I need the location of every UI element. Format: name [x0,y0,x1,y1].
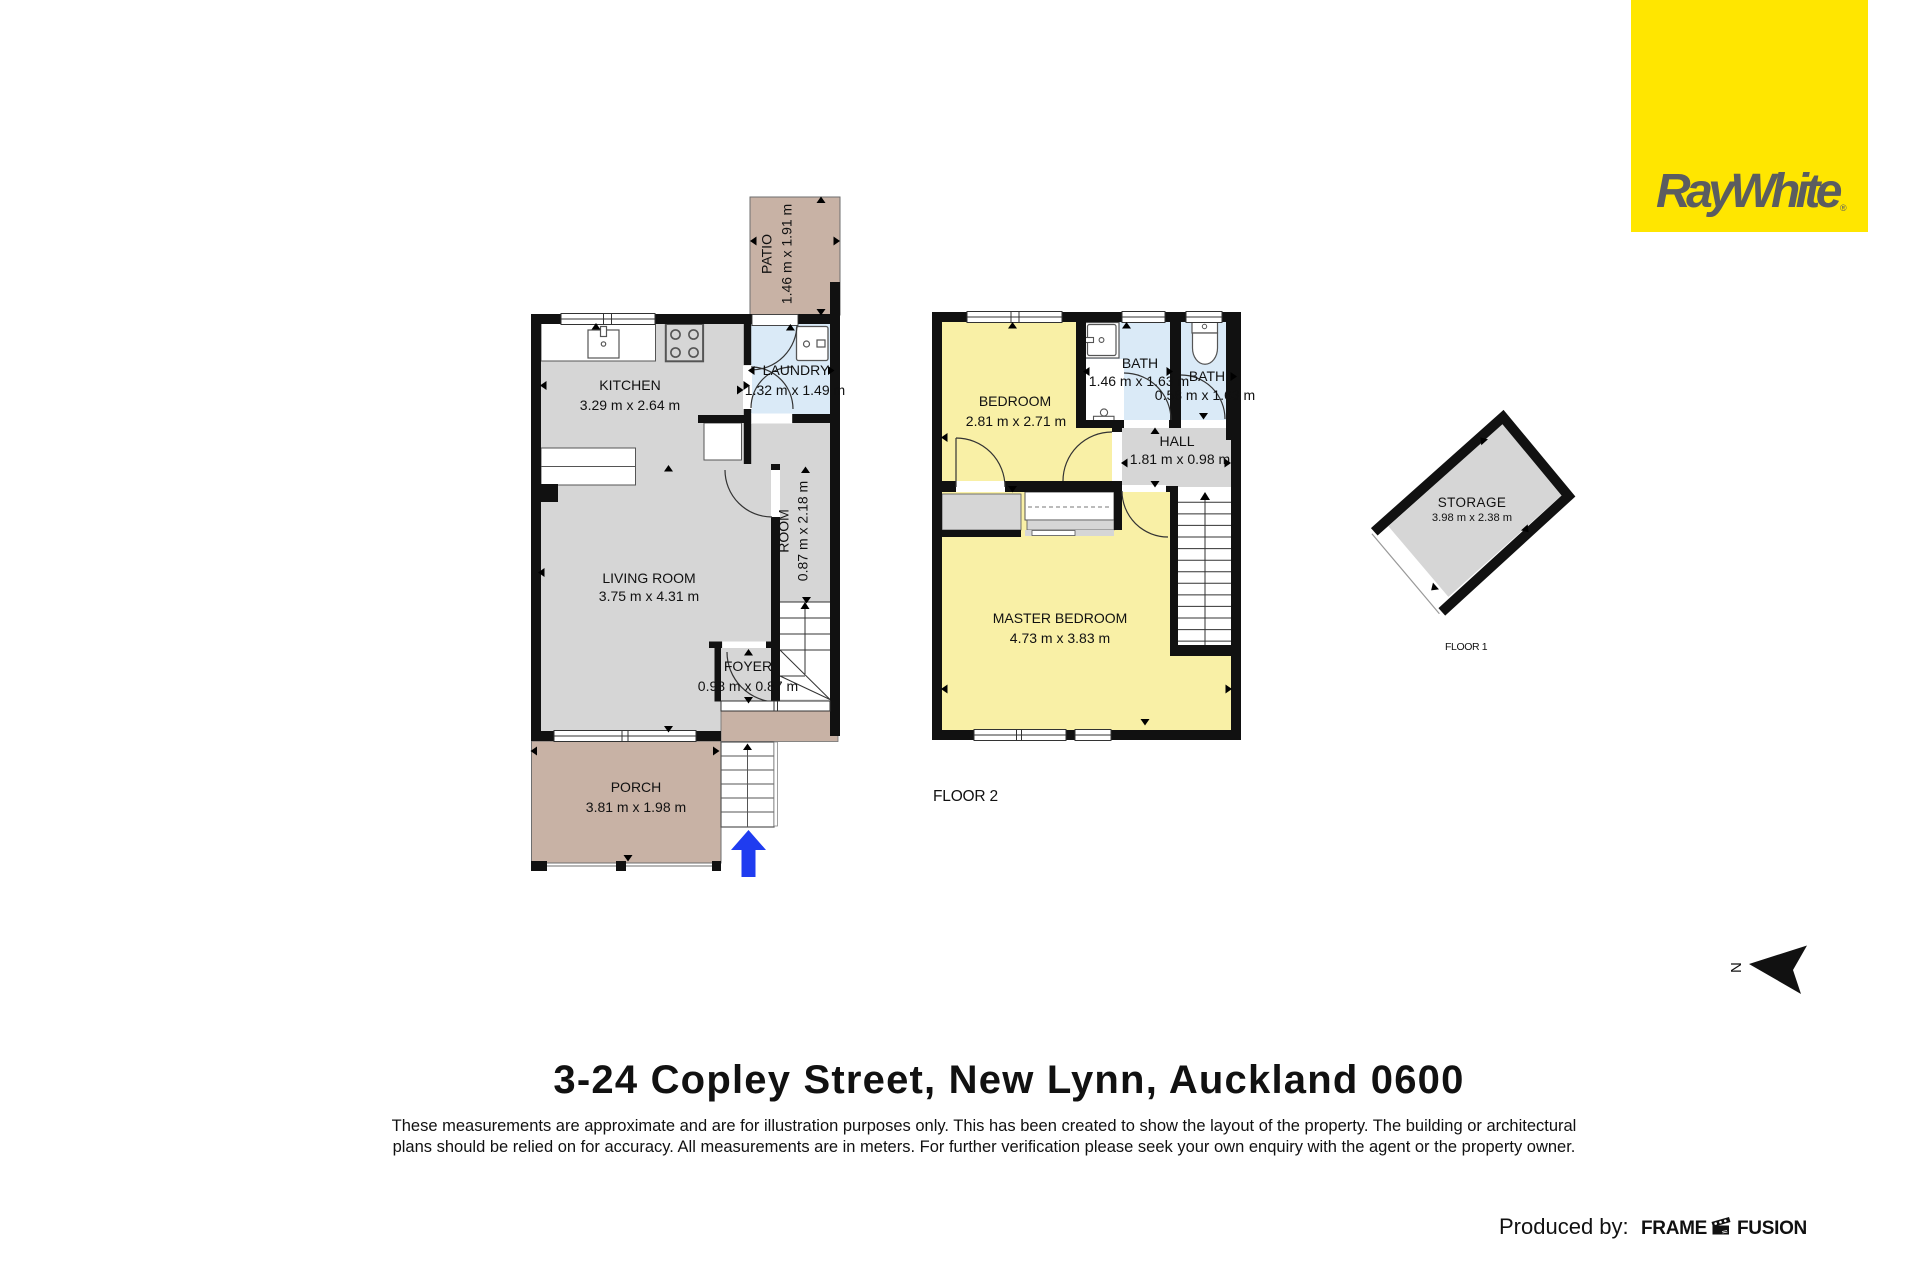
svg-text:®: ® [1840,203,1847,213]
svg-text:1.46 m x 1.91 m: 1.46 m x 1.91 m [779,204,795,304]
svg-text:HALL: HALL [1159,433,1194,449]
svg-text:3.75 m x 4.31 m: 3.75 m x 4.31 m [599,588,699,604]
svg-text:3.81 m x 1.98 m: 3.81 m x 1.98 m [586,799,686,815]
svg-text:ROOM: ROOM [776,509,792,553]
svg-text:4.73 m x 3.83 m: 4.73 m x 3.83 m [1010,630,1110,646]
svg-text:FLOOR 1: FLOOR 1 [1445,641,1488,653]
svg-text:These measurements are approxi: These measurements are approximate and a… [392,1117,1577,1135]
svg-text:RayWhite: RayWhite [1656,165,1842,218]
svg-text:FOYER: FOYER [724,658,772,674]
svg-text:FRAME: FRAME [1641,1218,1707,1239]
svg-text:3.98 m x 2.38 m: 3.98 m x 2.38 m [1432,512,1512,524]
svg-text:0.87 m x 2.18 m: 0.87 m x 2.18 m [795,481,811,581]
svg-text:Produced by:: Produced by: [1499,1214,1629,1239]
svg-text:0.98 m x 0.87 m: 0.98 m x 0.87 m [698,678,798,694]
svg-text:3.29 m x 2.64 m: 3.29 m x 2.64 m [580,397,680,413]
svg-text:KITCHEN: KITCHEN [599,377,660,393]
svg-text:FLOOR 2: FLOOR 2 [933,788,998,805]
svg-text:STORAGE: STORAGE [1438,495,1507,510]
svg-text:3-24 Copley Street, New Lynn,: 3-24 Copley Street, New Lynn, Auckland 0… [553,1058,1464,1102]
svg-text:BATH: BATH [1189,368,1225,384]
svg-text:LAUNDRY: LAUNDRY [763,362,830,378]
svg-text:1.32 m x 1.49 m: 1.32 m x 1.49 m [745,382,845,398]
svg-text:0.58 m x 1.63 m: 0.58 m x 1.63 m [1155,387,1255,403]
svg-text:PORCH: PORCH [611,779,662,795]
svg-text:BATH: BATH [1122,355,1158,371]
svg-text:LIVING ROOM: LIVING ROOM [602,570,695,586]
svg-text:MASTER BEDROOM: MASTER BEDROOM [993,610,1128,626]
svg-text:PATIO: PATIO [759,234,775,274]
svg-text:1.81 m x 0.98 m: 1.81 m x 0.98 m [1130,451,1230,467]
svg-text:FUSION: FUSION [1737,1218,1807,1239]
svg-text:plans should be relied on for: plans should be relied on for accuracy. … [393,1138,1576,1156]
svg-text:N: N [1728,962,1745,973]
svg-text:BEDROOM: BEDROOM [979,393,1051,409]
svg-text:2.81 m x 2.71 m: 2.81 m x 2.71 m [966,413,1066,429]
